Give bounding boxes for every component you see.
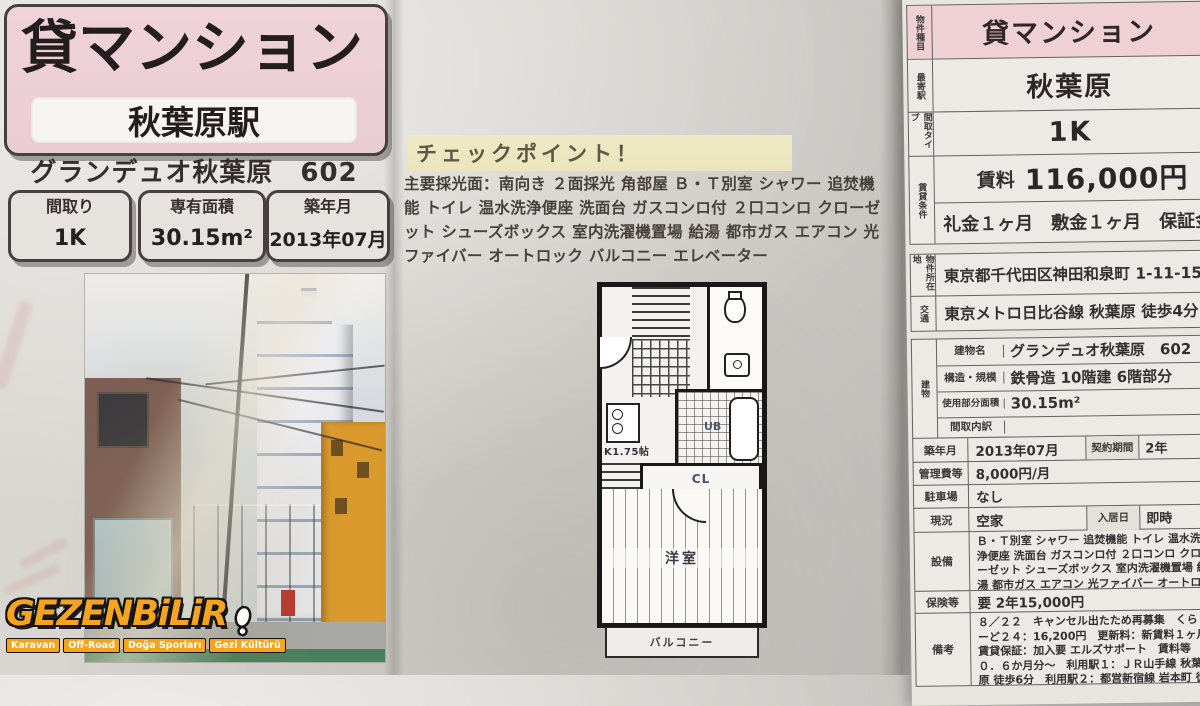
table-row-building-name: 建物名 グランデュオ秋葉原 602 (937, 335, 1200, 365)
row-label: 間取タイプ (909, 112, 935, 156)
table-row-access: 交通 東京メトロ日比谷線 秋葉原 徒歩4分 (910, 292, 1200, 332)
paper-showthrough-mark (3, 563, 61, 596)
row-label: 保険等 (915, 591, 970, 614)
western-room: 洋室 (602, 489, 762, 623)
table-row-nearest-station: 最寄駅 秋葉原 (907, 55, 1200, 113)
footprint-icon (227, 603, 259, 638)
row-value: 東京都千代田区神田和泉町 1-11-15 (936, 250, 1200, 296)
table-row-address: 物件所在地 東京都千代田区神田和泉町 1-11-15 (910, 249, 1200, 297)
row-label: 使用部分面積 (938, 398, 1005, 410)
washbasin-room (707, 343, 762, 389)
group-label: 賃貸条件 (909, 157, 935, 244)
row-label: 交通 (911, 297, 936, 331)
spec-label: 専有面積 (170, 193, 234, 217)
balcony: バルコニー (605, 627, 759, 658)
table-group-building: 建物 建物名 グランデュオ秋葉原 602 構造・規模 鉄骨造 10階建 6階部分… (911, 334, 1200, 439)
paper-showthrough-mark (0, 300, 34, 390)
row-label: 現況 (914, 508, 969, 533)
brand-tag: Gezi Kültürü (209, 638, 285, 653)
entrance-door (600, 337, 632, 369)
flyer-title: 貸マンション (21, 13, 371, 84)
row-label: 築年月 (913, 438, 968, 462)
row-label: 管理費等 (914, 462, 969, 486)
group-label: 建物 (912, 339, 938, 438)
row-label: 間取内訳 (938, 421, 1005, 434)
row-value: 30.15m² (1005, 392, 1200, 413)
spec-value: 1K (54, 218, 86, 259)
row-label: 設備 (915, 532, 971, 591)
spec-value: 2013年07月 (269, 218, 386, 259)
row-value: 1K (934, 108, 1200, 156)
spec-value: 30.15m² (151, 218, 253, 259)
checkpoint-body-text: 主要採光面：南向き ２面採光 角部屋 Ｂ・Ｔ別室 シャワー 追焚機能 トイレ 温… (404, 172, 884, 268)
table-row-property-type: 物件種目 貸マンション (906, 0, 1200, 60)
stove-icon (606, 403, 640, 443)
unit-bath: UB (675, 389, 762, 466)
row-value: 即時 (1140, 504, 1200, 529)
photo-of-rental-listing: { "flyer": { "title": "貸マンション", "station… (0, 0, 1200, 675)
paper-showthrough-mark (19, 536, 70, 569)
row-label: 入居日 (1086, 505, 1140, 530)
floor-plan: K1.75帖 UB CL 洋室 バルコニー (597, 282, 767, 658)
kitchen-label: K1.75帖 (604, 443, 649, 458)
spec-label: 築年月 (304, 193, 352, 217)
flyer-header-card: 貸マンション 秋葉原駅 (4, 4, 388, 156)
row-label: 物件種目 (907, 5, 933, 59)
spec-box-area: 専有面積 30.15m² (138, 190, 266, 262)
room-door (672, 489, 706, 523)
row-value: 貸マンション (932, 1, 1200, 59)
row-value: 要 2年15,000円 (970, 587, 1200, 612)
table-row-exclusive-area: 使用部分面積 30.15m² (938, 387, 1200, 417)
row-value: ８／２２ キャンセル出たため再募集 くらしーど２４：16,200円 更新料：新賃… (971, 610, 1200, 685)
property-table: 物件種目 貸マンション 最寄駅 秋葉原 間取タイプ 1K 賃貸条件 賃料 116… (906, 0, 1200, 687)
table-row-layout-detail: 間取内訳 (938, 413, 1200, 438)
table-row-rent: 賃料 116,000円 (934, 152, 1200, 202)
table-row-remarks: 備考 ８／２２ キャンセル出たため再募集 くらしーど２４：16,200円 更新料… (915, 609, 1200, 687)
bath-label: UB (704, 420, 721, 433)
spec-box-layout: 間取り 1K (8, 190, 132, 262)
row-label: 建物名 (937, 345, 1004, 358)
station-name-box: 秋葉原駅 (31, 97, 357, 143)
row-value: Ｂ・Ｔ別室 シャワー 追焚機能 トイレ 温水洗浄便座 洗面台 ガスコンロ付 ２口… (970, 529, 1200, 590)
rent-value: 116,000円 (1025, 156, 1189, 198)
bathtub-icon (729, 397, 759, 461)
row-value: なし (969, 482, 1200, 507)
brand-tag: Off-Road (63, 638, 120, 653)
toilet-room (707, 287, 762, 346)
hallway-hatch (632, 287, 690, 339)
row-value: 空家 (969, 506, 1086, 532)
washbasin-icon (724, 353, 750, 377)
row-label: 駐車場 (914, 485, 969, 508)
row-label: 契約期間 (1085, 436, 1139, 460)
brand-tag: Karavan (6, 638, 60, 653)
row-value: グランデュオ秋葉原 602 (1004, 338, 1200, 362)
property-data-sheet: 物件種目 貸マンション 最寄駅 秋葉原 間取タイプ 1K 賃貸条件 賃料 116… (902, 0, 1200, 706)
row-value: 8,000円/月 (969, 458, 1200, 484)
row-value: 2年 (1139, 435, 1200, 459)
rent-label: 賃料 (977, 165, 1015, 193)
hall-hatch (602, 463, 640, 489)
brand-tagline: Karavan Off-Road Doğa Sporları Gezi Kült… (6, 638, 306, 653)
row-value: 鉄骨造 10階建 6階部分 (1004, 364, 1200, 388)
table-row-equipment: 設備 Ｂ・Ｔ別室 シャワー 追焚機能 トイレ 温水洗浄便座 洗面台 ガスコンロ付… (914, 528, 1200, 592)
table-row-layout-type: 間取タイプ 1K (908, 107, 1200, 157)
floor-plan-walls: K1.75帖 UB CL 洋室 (597, 282, 767, 628)
brand-tag: Doğa Sporları (123, 638, 206, 653)
building-name-line: グランデュオ秋葉原 602 (0, 152, 388, 189)
room-label: 洋室 (602, 548, 762, 568)
row-label: 最寄駅 (908, 60, 934, 112)
checkpoint-heading: チェックポイント！ (408, 135, 792, 171)
watermark-logo: GEZENBiLiR Karavan Off-Road Doğa Sporlar… (6, 594, 306, 653)
table-group-rent-terms: 賃貸条件 賃料 116,000円 礼金１ヶ月 敷金１ヶ月 保証金な (908, 152, 1200, 245)
row-value: 秋葉原 (933, 56, 1200, 112)
table-row-structure: 構造・規模 鉄骨造 10階建 6階部分 (937, 361, 1200, 391)
row-value: 東京メトロ日比谷線 秋葉原 徒歩4分 (936, 293, 1200, 331)
row-value (1005, 424, 1200, 427)
row-label: 構造・規模 (937, 372, 1004, 385)
spec-label: 間取り (46, 193, 94, 217)
toilet-icon (724, 295, 746, 323)
brand-wordmark: GEZENBiLiR (6, 594, 227, 634)
row-label: 物件所在地 (911, 254, 937, 296)
row-value: 2013年07月 (968, 436, 1085, 461)
spec-box-built: 築年月 2013年07月 (266, 190, 390, 262)
table-row-fees: 礼金１ヶ月 敷金１ヶ月 保証金な (935, 198, 1200, 243)
